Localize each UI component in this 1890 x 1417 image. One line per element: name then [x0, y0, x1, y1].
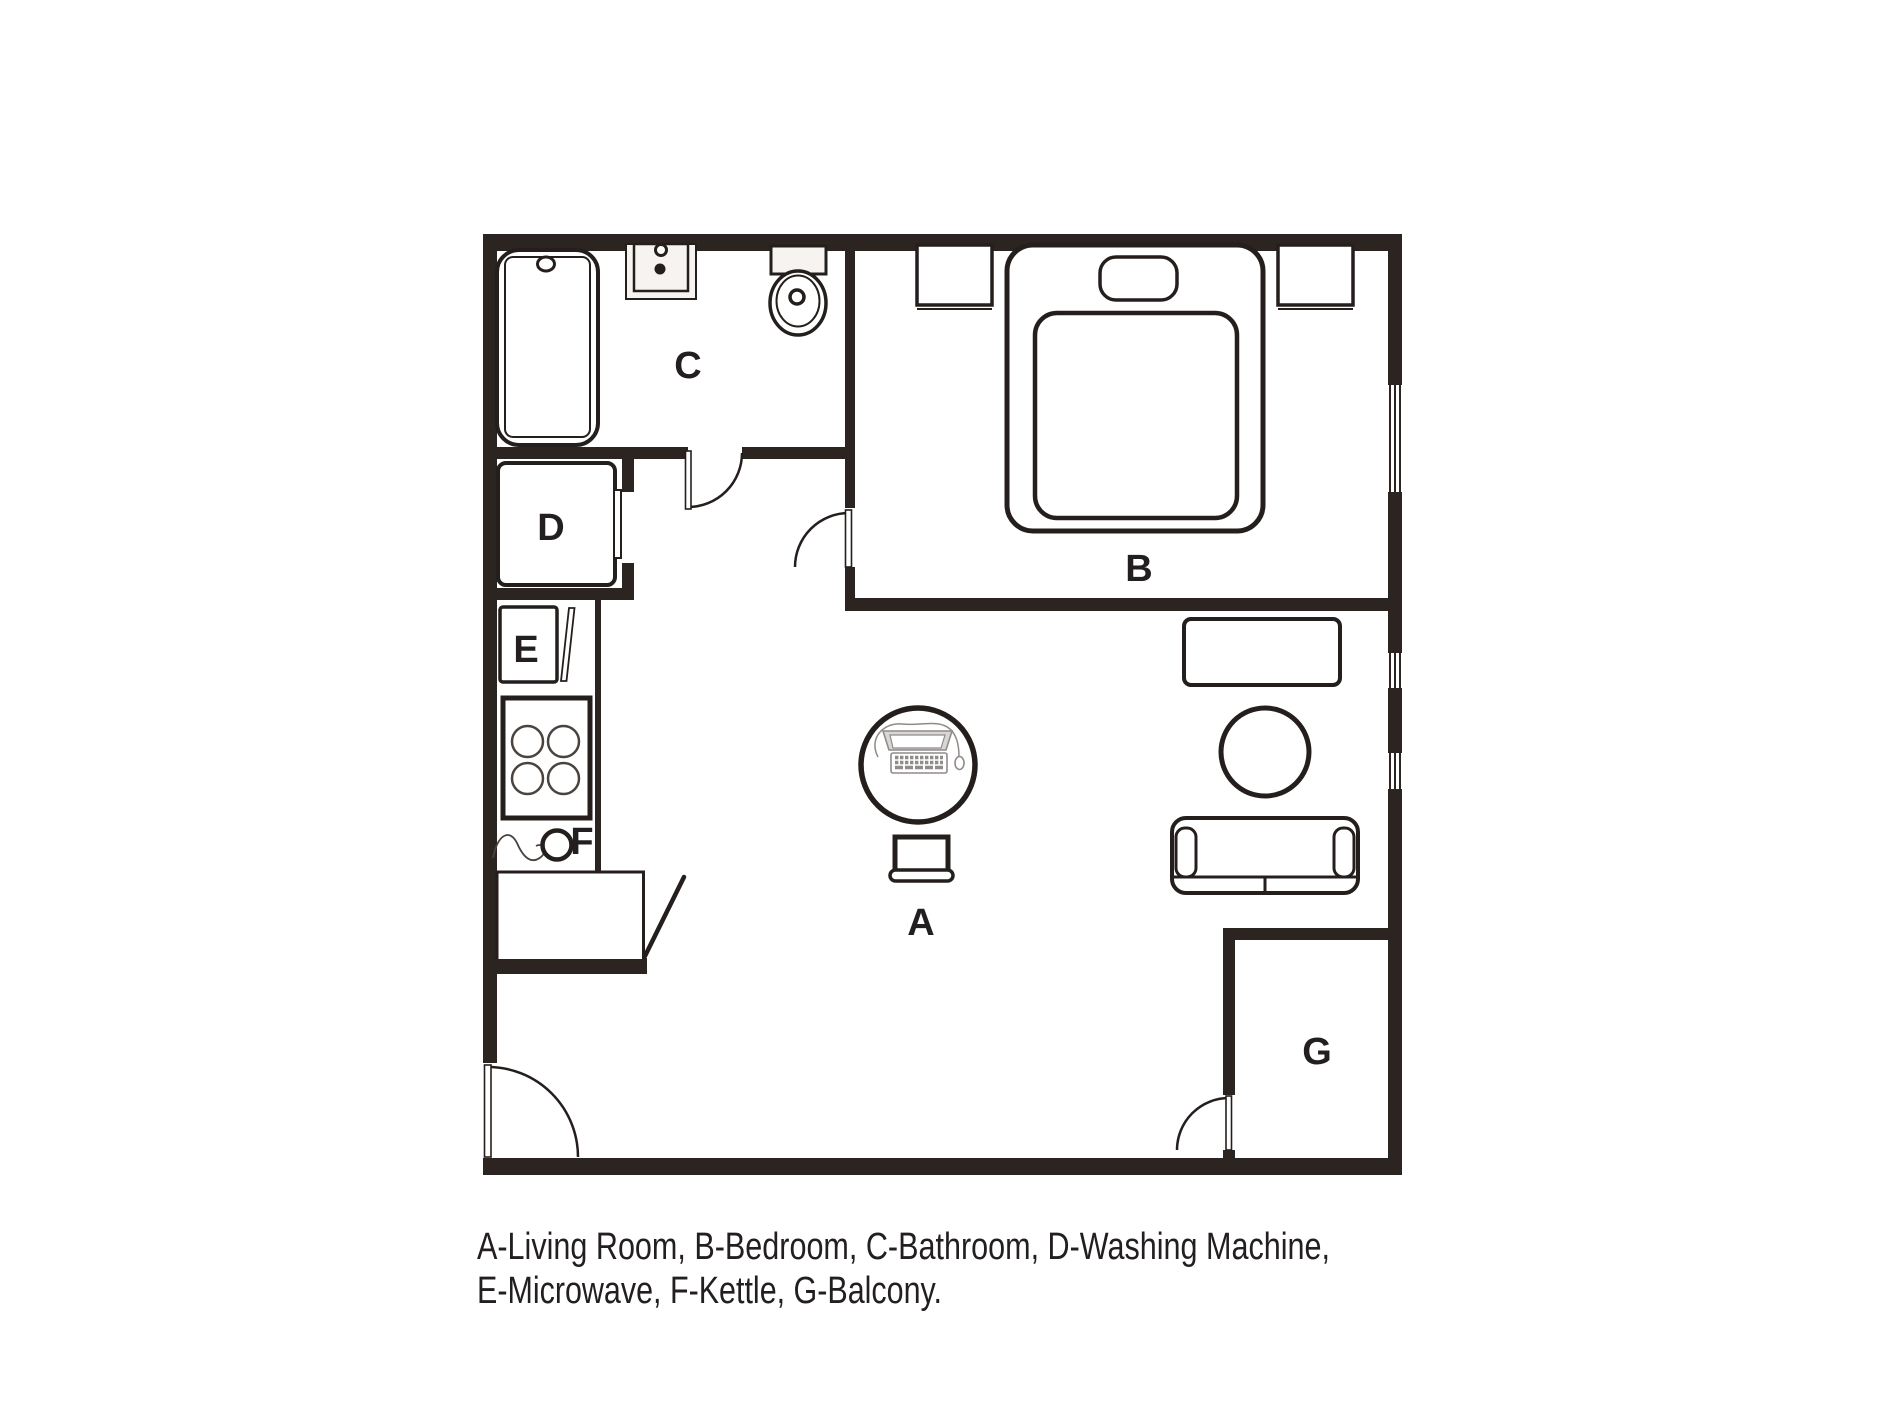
bathroom-door-leaf — [686, 451, 692, 509]
entry-door-arc — [488, 1067, 578, 1157]
label-microwave: E — [513, 629, 538, 671]
entry-door-leaf — [485, 1065, 492, 1157]
kettle-cord — [493, 835, 544, 860]
sink — [626, 244, 696, 299]
label-bathroom: C — [674, 345, 701, 387]
window-living-2 — [1390, 753, 1400, 789]
computer-keyboard — [891, 753, 947, 773]
wall-bedroom-left-upper — [845, 247, 855, 508]
wall-outer-right-seg3 — [1388, 688, 1402, 753]
wall-outer-bottom — [483, 1158, 1402, 1175]
balcony-door-leaf — [1226, 1096, 1232, 1150]
bathroom-fixtures — [497, 244, 826, 445]
wall-niche-stub-top — [622, 459, 634, 492]
bedroom-furniture — [917, 245, 1353, 531]
label-bedroom: B — [1125, 548, 1152, 590]
chair-back — [890, 870, 953, 881]
computer-mouse — [955, 757, 964, 770]
floor-plan-drawing: A B C D E F G A-Living Room, B-Bedroom, … — [0, 0, 1890, 1417]
wall-bedroom-bottom — [845, 598, 1402, 611]
chair-seat — [895, 837, 948, 873]
stove — [503, 698, 590, 818]
label-kettle: F — [570, 821, 593, 863]
nightstand-left — [917, 245, 992, 309]
bathtub — [497, 250, 598, 445]
label-balcony: G — [1302, 1031, 1332, 1073]
bathroom-door — [686, 451, 743, 509]
wall-outer-right-seg4 — [1388, 789, 1402, 1175]
entry-door — [485, 1065, 579, 1157]
label-washing-machine: D — [537, 507, 564, 549]
bedroom-door — [795, 510, 852, 567]
toilet-flush-button — [790, 290, 804, 304]
wall-niche-stub-bottom — [622, 563, 634, 588]
sink-faucet — [656, 245, 667, 256]
legend-line-2: E-Microwave, F-Kettle, G-Balcony. — [477, 1270, 942, 1312]
balcony-door-arc — [1177, 1098, 1229, 1150]
bed-pillow — [1100, 257, 1177, 300]
round-table — [1221, 708, 1309, 796]
floor-plan-page: A B C D E F G A-Living Room, B-Bedroom, … — [0, 0, 1890, 1417]
kettle-body — [543, 831, 572, 860]
bedroom-door-arc — [795, 513, 849, 567]
wall-kitchen-counter-edge — [595, 600, 601, 871]
label-living-room: A — [907, 902, 934, 944]
wall-niche-bottom — [483, 588, 634, 600]
window-bedroom — [1390, 385, 1400, 492]
legend-line-1: A-Living Room, B-Bedroom, C-Bathroom, D-… — [477, 1226, 1330, 1268]
wall-balcony-left-lower — [1223, 1150, 1235, 1175]
microwave-door-flap — [561, 608, 575, 681]
wall-bathroom-bottom-right — [742, 447, 855, 459]
bathroom-door-arc — [688, 453, 742, 507]
counter-flap — [645, 877, 684, 956]
wall-kitchen-bottom-block — [483, 958, 647, 974]
nightstand-right — [1278, 245, 1353, 309]
sofa-arm-right — [1334, 828, 1354, 877]
chair — [890, 837, 953, 881]
bedroom-door-leaf — [846, 510, 852, 567]
tv-stand — [1184, 619, 1340, 685]
kettle — [493, 831, 572, 861]
bed — [1007, 245, 1263, 531]
wall-outer-right-seg2 — [1388, 492, 1402, 653]
wall-balcony-left-upper — [1223, 928, 1235, 1095]
window-living-1 — [1390, 653, 1400, 688]
wall-balcony-top — [1223, 928, 1402, 940]
kitchen-fixtures — [493, 463, 684, 959]
wall-bathroom-bottom-left — [483, 447, 688, 459]
sofa — [1172, 818, 1358, 893]
sofa-arm-left — [1176, 828, 1196, 877]
wall-outer-left — [483, 234, 497, 1063]
bed-mattress — [1035, 313, 1237, 518]
washing-machine-door — [614, 490, 621, 558]
living-room-furniture — [861, 619, 1358, 893]
kitchen-counter — [497, 872, 684, 959]
legend: A-Living Room, B-Bedroom, C-Bathroom, D-… — [477, 1226, 1330, 1312]
wall-outer-right-seg1 — [1388, 234, 1402, 385]
computer-monitor-screen — [890, 735, 945, 748]
balcony-door — [1177, 1096, 1232, 1150]
computer-table — [861, 708, 975, 822]
sink-drain — [655, 264, 666, 275]
toilet — [770, 246, 826, 335]
